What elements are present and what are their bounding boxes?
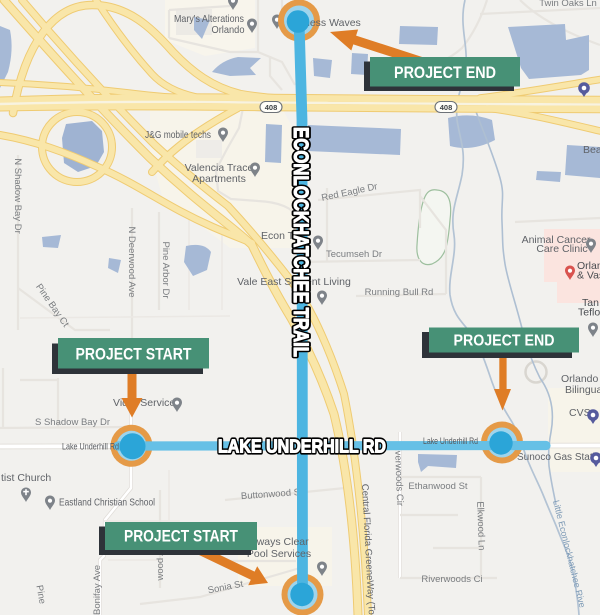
svg-text:Riverwoods Ci: Riverwoods Ci [421,574,482,585]
svg-text:J&G mobile techs: J&G mobile techs [145,130,211,141]
svg-text:& Vasc: & Vasc [577,270,600,282]
svg-text:Teflon: Teflon [578,307,600,319]
svg-text:PROJECT START: PROJECT START [124,528,238,546]
svg-text:LAKE UNDERHILL RD: LAKE UNDERHILL RD [218,436,386,457]
svg-text:Bonifay Ave: Bonifay Ave [92,565,103,615]
svg-text:Elkwood Ln: Elkwood Ln [474,501,487,550]
svg-text:Ethanwood St: Ethanwood St [408,481,468,492]
svg-text:Pine Arbor Dr: Pine Arbor Dr [160,241,171,298]
svg-text:Lake Underhill Rd: Lake Underhill Rd [423,436,478,447]
svg-text:Apartments: Apartments [192,173,246,185]
svg-text:Sunoco Gas Station: Sunoco Gas Station [517,452,600,463]
svg-text:408: 408 [265,103,278,112]
svg-text:CVS: CVS [569,407,591,419]
svg-text:Bilingual: Bilingual [565,384,600,396]
svg-text:PROJECT END: PROJECT END [454,332,555,349]
svg-text:N Deerwood Ave: N Deerwood Ave [126,226,137,297]
svg-text:Care Clinic: Care Clinic [536,243,587,255]
svg-text:Tecumseh Dr: Tecumseh Dr [326,249,382,260]
svg-text:ness Waves: ness Waves [304,17,361,29]
svg-text:Beau: Beau [583,144,600,156]
svg-text:Twin Oaks Ln: Twin Oaks Ln [539,0,597,9]
svg-text:408: 408 [440,103,453,112]
svg-text:N Shadow Bay Dr: N Shadow Bay Dr [12,158,23,234]
svg-text:Running Bull Rd: Running Bull Rd [365,287,434,298]
svg-text:tist Church: tist Church [1,472,51,484]
svg-text:Orlando: Orlando [212,24,245,36]
svg-text:S Shadow Bay Dr: S Shadow Bay Dr [35,417,110,428]
svg-text:PROJECT END: PROJECT END [394,63,496,82]
svg-text:PROJECT START: PROJECT START [76,344,193,363]
svg-text:Eastland Christian School: Eastland Christian School [59,497,155,509]
svg-text:ECONLOCKHATCHEE TRAIL: ECONLOCKHATCHEE TRAIL [289,127,312,357]
svg-text:Lake Underhill Rd: Lake Underhill Rd [62,442,119,453]
svg-text:Riverwoods Cir: Riverwoods Cir [392,442,405,507]
